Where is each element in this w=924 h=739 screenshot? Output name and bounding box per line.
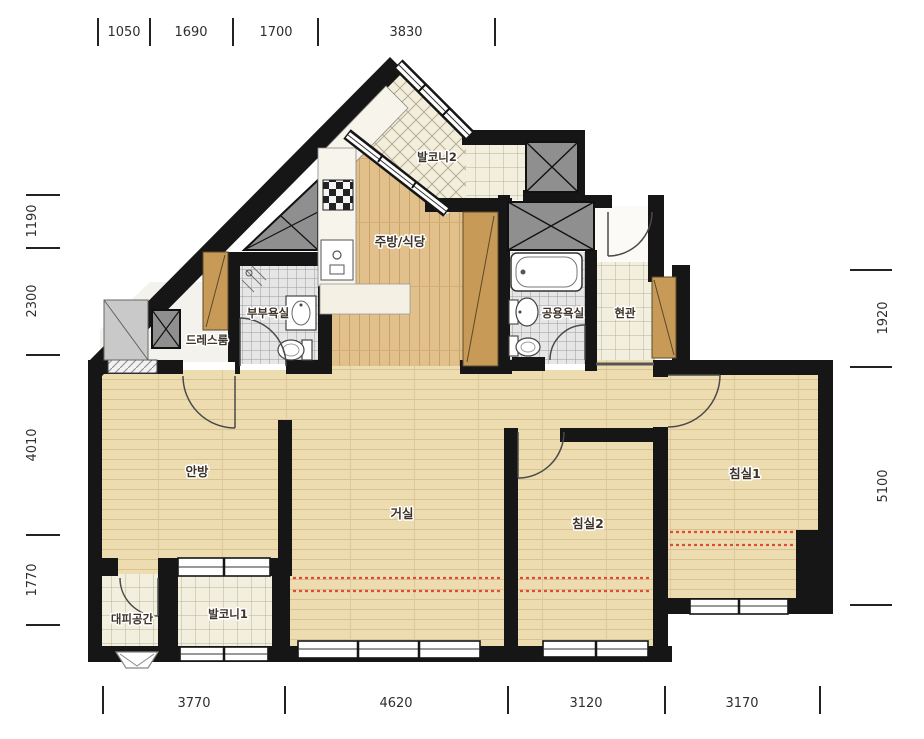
dim-bottom-1: 3770 bbox=[177, 696, 210, 711]
dim-left-1: 1190 bbox=[25, 204, 40, 237]
dim-left-3: 4010 bbox=[25, 428, 40, 461]
dim-top-2: 1690 bbox=[174, 25, 207, 40]
bedroom1-window bbox=[690, 599, 788, 614]
label-bedroom2: 침실2 bbox=[572, 516, 604, 531]
label-bedroom1: 침실1 bbox=[729, 466, 761, 481]
balcony1-window bbox=[180, 647, 268, 661]
label-master-bedroom: 안방 bbox=[185, 464, 209, 479]
floor-plan-canvas: 발코니2 주방/식당 부부욕실 드레스룸 공용욕실 현관 안방 거실 침실2 침… bbox=[0, 0, 924, 739]
dim-bottom-2: 4620 bbox=[379, 696, 412, 711]
label-balcony1: 발코니1 bbox=[208, 607, 248, 621]
wall-niche-hatch bbox=[108, 360, 157, 373]
stove-icon bbox=[323, 180, 353, 210]
dim-top-4: 3830 bbox=[389, 25, 422, 40]
dim-top-1: 1050 bbox=[107, 25, 140, 40]
dim-left-4: 1770 bbox=[25, 563, 40, 596]
dim-right-1: 1920 bbox=[876, 301, 891, 334]
master-toilet-icon bbox=[278, 340, 304, 360]
label-dressroom: 드레스룸 bbox=[186, 333, 229, 347]
kitchen-bar-counter bbox=[320, 284, 410, 314]
common-toilet-icon bbox=[516, 338, 540, 356]
dim-left-2: 2300 bbox=[25, 284, 40, 317]
label-balcony2: 발코니2 bbox=[417, 150, 457, 164]
master-bedroom-window bbox=[178, 558, 270, 576]
label-kitchen: 주방/식당 bbox=[375, 234, 426, 249]
label-master-bath: 부부욕실 bbox=[247, 306, 289, 320]
bedroom2-window bbox=[543, 641, 648, 657]
floor-plan-drawing: 발코니2 주방/식당 부부욕실 드레스룸 공용욕실 현관 안방 거실 침실2 침… bbox=[0, 0, 924, 739]
dim-top-3: 1700 bbox=[259, 25, 292, 40]
dim-bottom-3: 3120 bbox=[569, 696, 602, 711]
living-window bbox=[298, 641, 480, 658]
dim-right-2: 5100 bbox=[876, 469, 891, 502]
dim-bottom-4: 3170 bbox=[725, 696, 758, 711]
label-living: 거실 bbox=[390, 506, 413, 521]
label-shelter: 대피공간 bbox=[111, 612, 154, 626]
label-common-bath: 공용욕실 bbox=[542, 306, 584, 320]
label-entrance: 현관 bbox=[614, 306, 636, 320]
shelter-vent bbox=[116, 652, 158, 668]
room-shelter-floor bbox=[100, 574, 160, 648]
